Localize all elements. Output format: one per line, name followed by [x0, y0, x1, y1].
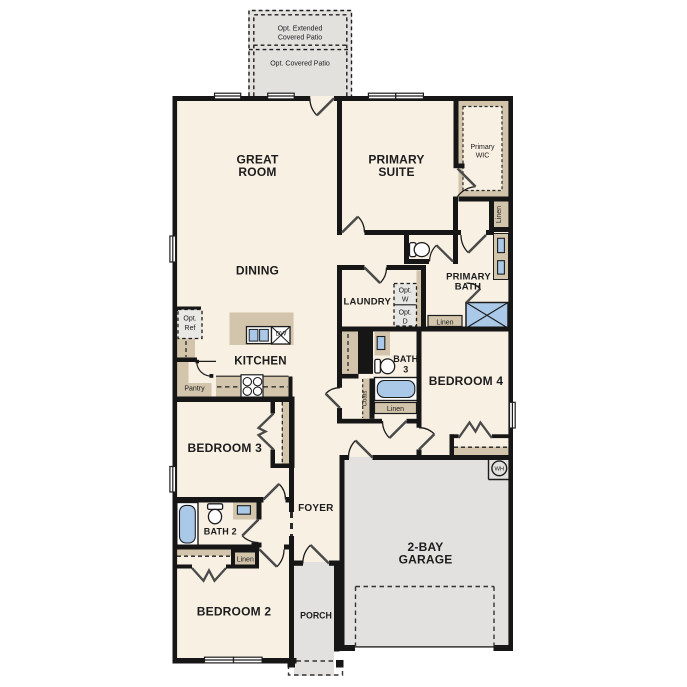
svg-text:WH: WH	[494, 467, 504, 473]
svg-text:LAUNDRY: LAUNDRY	[344, 297, 392, 308]
svg-text:W: W	[402, 297, 409, 304]
svg-text:Linen: Linen	[496, 206, 503, 223]
svg-text:GARAGE: GARAGE	[399, 553, 453, 567]
svg-text:Covered Patio: Covered Patio	[278, 35, 322, 42]
svg-text:FOYER: FOYER	[298, 503, 334, 514]
svg-text:ROOM: ROOM	[238, 165, 276, 179]
svg-text:DW: DW	[276, 330, 288, 337]
svg-text:SUITE: SUITE	[378, 165, 414, 179]
svg-text:BATH: BATH	[393, 354, 418, 364]
svg-text:Opt.: Opt.	[399, 288, 412, 295]
svg-text:BEDROOM 4: BEDROOM 4	[429, 374, 504, 388]
svg-text:Opt.: Opt.	[183, 316, 196, 323]
svg-text:Linen: Linen	[237, 557, 254, 564]
svg-text:BEDROOM 3: BEDROOM 3	[188, 441, 263, 455]
svg-text:Pantry: Pantry	[184, 386, 205, 393]
svg-text:DINING: DINING	[236, 264, 279, 278]
svg-text:BATH: BATH	[455, 282, 481, 293]
svg-text:Opt. Extended: Opt. Extended	[278, 26, 323, 33]
svg-text:Ref: Ref	[185, 325, 196, 332]
svg-text:Opt.: Opt.	[399, 310, 412, 317]
svg-text:Opt. Covered Patio: Opt. Covered Patio	[270, 61, 330, 68]
svg-text:Coats: Coats	[362, 391, 368, 407]
svg-text:Linen: Linen	[436, 320, 453, 327]
svg-text:Linen: Linen	[387, 406, 404, 413]
svg-text:WIC: WIC	[476, 153, 490, 160]
svg-text:D: D	[403, 319, 408, 326]
svg-text:BEDROOM 2: BEDROOM 2	[197, 605, 272, 619]
svg-text:KITCHEN: KITCHEN	[234, 356, 287, 368]
svg-text:Primary: Primary	[470, 144, 495, 151]
svg-text:BATH 2: BATH 2	[204, 527, 237, 537]
svg-text:3: 3	[403, 365, 408, 375]
svg-text:PORCH: PORCH	[300, 611, 332, 621]
